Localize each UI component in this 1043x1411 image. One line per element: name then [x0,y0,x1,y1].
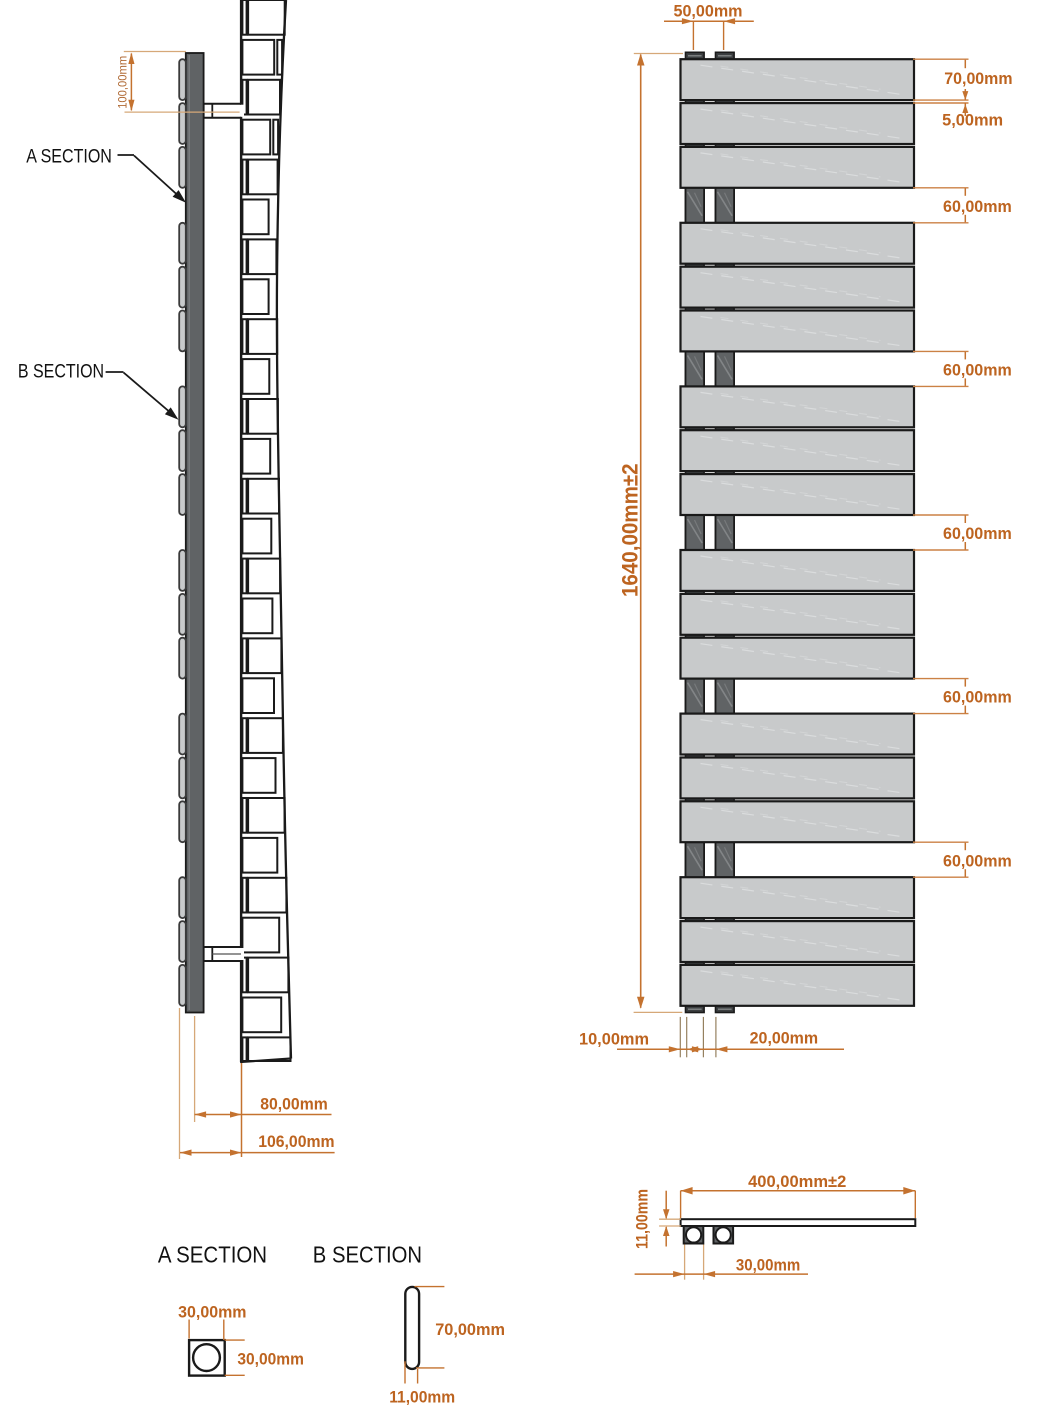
svg-text:A SECTION: A SECTION [158,1241,267,1267]
svg-text:50,00mm: 50,00mm [674,1,743,20]
svg-text:100,00mm: 100,00mm [117,56,129,109]
svg-text:B SECTION: B SECTION [313,1241,422,1267]
svg-text:60,00mm: 60,00mm [943,361,1012,380]
svg-text:A SECTION: A SECTION [26,146,112,167]
svg-text:B SECTION: B SECTION [18,362,104,383]
svg-text:106,00mm: 106,00mm [258,1132,334,1151]
svg-text:60,00mm: 60,00mm [943,851,1012,870]
svg-text:5,00mm: 5,00mm [942,110,1003,129]
svg-text:1640,00mm±2: 1640,00mm±2 [617,463,642,597]
svg-text:30,00mm: 30,00mm [237,1350,304,1369]
svg-text:20,00mm: 20,00mm [750,1029,819,1048]
svg-text:60,00mm: 60,00mm [943,688,1012,707]
svg-text:30,00mm: 30,00mm [178,1302,246,1321]
svg-text:70,00mm: 70,00mm [944,69,1012,88]
svg-text:80,00mm: 80,00mm [260,1094,328,1113]
svg-text:70,00mm: 70,00mm [435,1320,505,1339]
svg-text:60,00mm: 60,00mm [943,197,1012,216]
svg-text:11,00mm: 11,00mm [633,1189,652,1249]
svg-text:11,00mm: 11,00mm [389,1388,455,1407]
svg-text:30,00mm: 30,00mm [736,1255,800,1274]
svg-text:60,00mm: 60,00mm [943,524,1012,543]
svg-text:400,00mm±2: 400,00mm±2 [748,1172,846,1191]
svg-text:10,00mm: 10,00mm [579,1030,649,1049]
